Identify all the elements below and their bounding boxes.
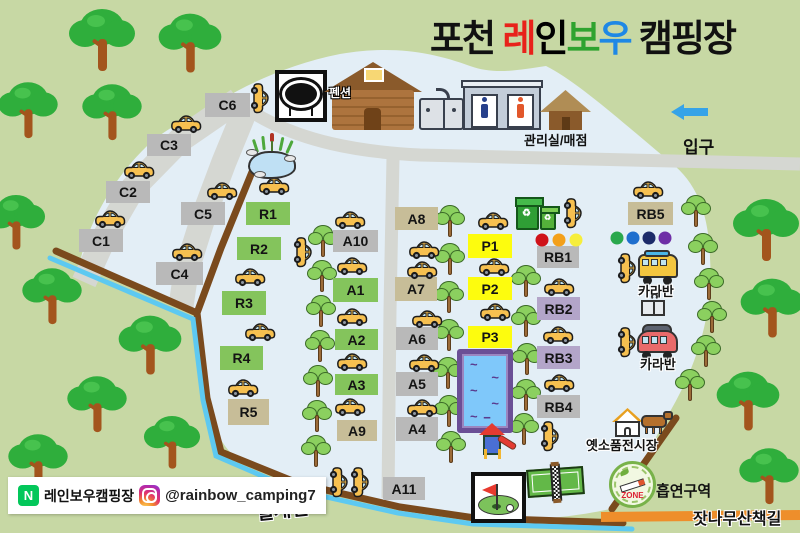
car-icon <box>617 325 638 359</box>
site-A10: A10 <box>333 230 378 252</box>
rainbow-dot <box>536 234 549 247</box>
washing-station-icon <box>419 98 464 130</box>
car-icon <box>540 419 561 453</box>
tree-icon <box>0 195 43 253</box>
small-tree-icon <box>437 205 463 239</box>
site-R3: R3 <box>222 291 266 315</box>
site-A2: A2 <box>335 329 378 350</box>
cow-icon <box>641 411 673 434</box>
small-tree-icon <box>513 265 539 299</box>
rainbow-dot <box>627 232 640 245</box>
tree-icon <box>719 372 778 435</box>
tree-icon <box>121 316 180 379</box>
car-icon <box>243 322 277 343</box>
car-icon <box>333 210 367 231</box>
small-tree-icon <box>438 431 464 465</box>
car-icon <box>250 81 271 115</box>
site-RB1: RB1 <box>537 246 579 268</box>
small-tree-icon <box>307 330 333 364</box>
car-icon <box>170 242 204 263</box>
tree-icon <box>84 84 140 143</box>
putting-green-icon <box>471 472 526 523</box>
entrance-arrow-icon <box>671 104 708 119</box>
site-A4: A4 <box>396 417 438 441</box>
swimming-pool-icon: ~~ ~~ ~ -- <box>457 349 513 433</box>
car-icon <box>407 240 441 261</box>
site-C6: C6 <box>205 93 250 117</box>
campground-map: C1C2C3C4C5C6R1R2R3R4R5A1A2A3A4A5A6A7A8A9… <box>0 0 800 533</box>
smoking-zone-badge: ZONE <box>612 491 653 500</box>
site-A9: A9 <box>337 420 377 441</box>
site-RB4: RB4 <box>537 395 580 418</box>
small-tree-icon <box>308 295 334 329</box>
site-R5: R5 <box>228 399 269 425</box>
smoking-zone-icon: ZONE <box>609 461 656 508</box>
car-icon <box>122 160 156 181</box>
car-icon <box>335 256 369 277</box>
site-A6: A6 <box>396 327 438 350</box>
rainbow-dot <box>553 234 566 247</box>
site-P2: P2 <box>468 277 512 300</box>
tree-icon <box>71 9 133 75</box>
car-icon <box>226 378 260 399</box>
site-A5: A5 <box>396 372 438 396</box>
small-tree-icon <box>699 301 725 335</box>
pingpong-table-icon <box>526 462 585 503</box>
restroom-icon <box>463 80 541 130</box>
car-icon <box>293 235 314 269</box>
rainbow-dot <box>643 232 656 245</box>
title-part: 캠핑장 <box>631 18 735 59</box>
site-A7: A7 <box>395 277 437 301</box>
car-icon <box>476 211 510 232</box>
social-info-box: N 레인보우캠핑장 @rainbow_camping7 <box>8 477 326 514</box>
car-icon <box>541 325 575 346</box>
site-R1: R1 <box>246 202 290 225</box>
site-RB2: RB2 <box>537 297 580 320</box>
site-C4: C4 <box>156 262 203 285</box>
pension-label: 펜션 <box>329 84 351 101</box>
site-C1: C1 <box>79 229 123 252</box>
site-A11: A11 <box>383 477 425 500</box>
title-part: 포천 <box>430 18 502 59</box>
small-tree-icon <box>513 305 539 339</box>
rainbow-dot <box>611 232 624 245</box>
naver-icon: N <box>18 485 39 506</box>
car-icon <box>407 353 441 374</box>
tree-icon <box>741 448 797 507</box>
car-icon <box>93 209 127 230</box>
car-icon <box>205 181 239 202</box>
small-tree-icon <box>696 268 722 302</box>
site-A8: A8 <box>395 207 438 230</box>
playground-icon <box>477 423 517 459</box>
small-tree-icon <box>677 369 703 403</box>
car-icon <box>335 352 369 373</box>
trampoline-icon <box>275 70 327 122</box>
small-tree-icon <box>513 379 539 413</box>
tree-icon <box>735 199 797 265</box>
caravan-red-icon <box>637 324 678 358</box>
instagram-handle: @rainbow_camping7 <box>165 487 316 504</box>
rainbow-dot <box>659 232 672 245</box>
car-icon <box>542 277 576 298</box>
site-C3: C3 <box>147 134 191 156</box>
tree-icon <box>0 82 56 141</box>
car-icon <box>350 465 371 499</box>
site-R4: R4 <box>220 346 263 370</box>
car-icon <box>233 267 267 288</box>
recycling-bins-icon: ♻ ♻ <box>516 194 556 231</box>
car-icon <box>333 397 367 418</box>
pond-icon <box>246 135 298 182</box>
car-icon <box>405 398 439 419</box>
car-icon <box>405 260 439 281</box>
title-part: 우 <box>599 18 631 59</box>
site-C5: C5 <box>181 202 225 225</box>
site-A1: A1 <box>333 278 378 302</box>
tree-icon <box>161 14 220 77</box>
car-icon <box>169 114 203 135</box>
small-tree-icon <box>693 335 719 369</box>
car-icon <box>563 196 584 230</box>
site-C2: C2 <box>106 181 150 203</box>
caravan2-label: 카라반 <box>640 354 676 373</box>
office-label: 관리실/매점 <box>524 130 587 149</box>
car-icon <box>631 180 665 201</box>
rainbow-dot <box>570 234 583 247</box>
instagram-icon <box>139 485 160 506</box>
small-tree-icon <box>304 400 330 434</box>
caravan-yellow-icon <box>638 250 678 283</box>
site-R2: R2 <box>237 237 281 260</box>
site-RB5: RB5 <box>628 202 673 225</box>
tree-icon <box>69 376 125 435</box>
title-part: 인 <box>534 18 566 59</box>
car-icon <box>410 309 444 330</box>
exhibition-label: 옛소품전시장 <box>586 435 658 454</box>
car-icon <box>617 251 638 285</box>
site-P3: P3 <box>468 326 512 348</box>
small-tree-icon <box>303 435 329 469</box>
car-icon <box>542 373 576 394</box>
car-icon <box>329 465 350 499</box>
page-title: 포천 레인보우 캠핑장 <box>430 8 790 62</box>
tree-icon <box>743 279 800 342</box>
tree-icon <box>24 268 80 327</box>
small-tree-icon <box>305 365 331 399</box>
office-hut-icon <box>540 90 591 130</box>
title-part: 보 <box>566 18 598 59</box>
car-icon <box>477 257 511 278</box>
small-tree-icon <box>690 233 716 267</box>
site-A3: A3 <box>335 374 378 395</box>
car-icon <box>478 302 512 323</box>
small-trailer-icon <box>641 295 665 318</box>
pension-cabin-icon: 펜션 <box>328 62 418 130</box>
small-tree-icon <box>683 195 709 229</box>
site-P1: P1 <box>468 234 512 258</box>
pine-trail-label: 잣나무산책길 <box>693 505 781 529</box>
tree-icon <box>146 416 199 472</box>
car-icon <box>335 307 369 328</box>
entrance-label: 입구 <box>683 133 714 158</box>
naver-account-label: 레인보우캠핑장 <box>44 486 134 506</box>
site-RB3: RB3 <box>537 346 580 369</box>
title-part: 레 <box>502 18 534 59</box>
exhibition-house-icon <box>612 408 643 438</box>
smoking-zone-label: 흡연구역 <box>656 480 711 501</box>
